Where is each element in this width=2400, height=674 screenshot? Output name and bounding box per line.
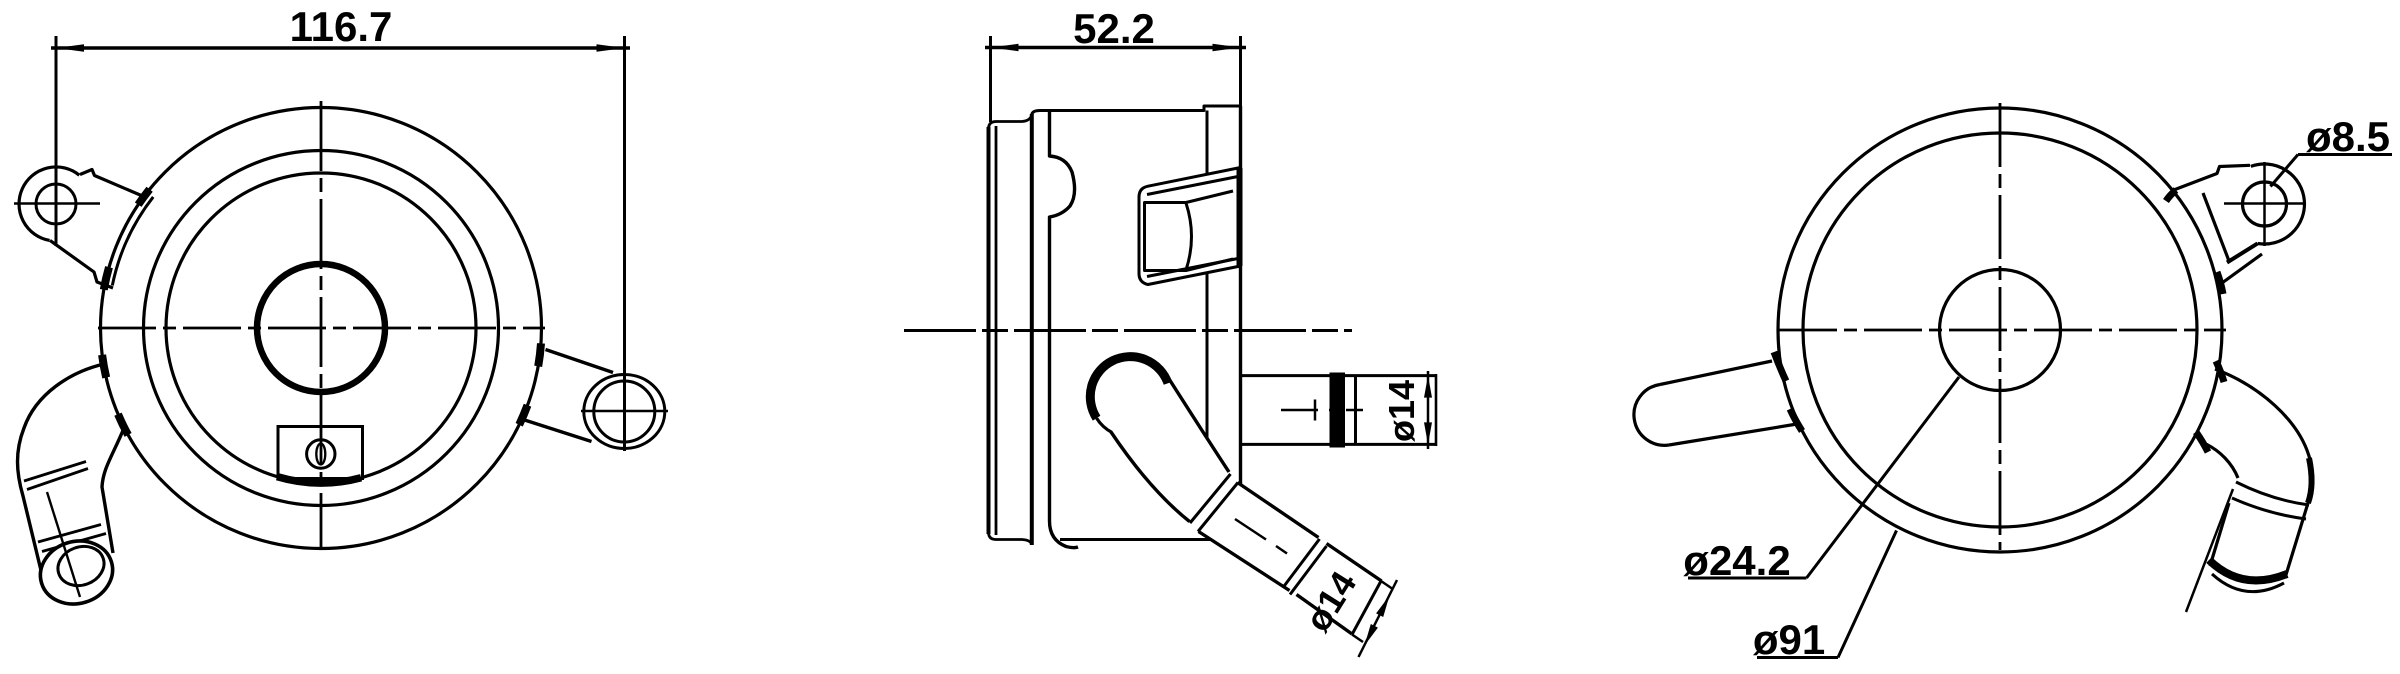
svg-text:ø91: ø91: [1753, 616, 1825, 663]
svg-text:ø14: ø14: [1381, 380, 1422, 442]
svg-text:ø24.2: ø24.2: [1683, 537, 1790, 584]
svg-text:116.7: 116.7: [290, 3, 393, 50]
svg-text:ø8.5: ø8.5: [2306, 113, 2390, 160]
svg-text:52.2: 52.2: [1073, 5, 1155, 52]
